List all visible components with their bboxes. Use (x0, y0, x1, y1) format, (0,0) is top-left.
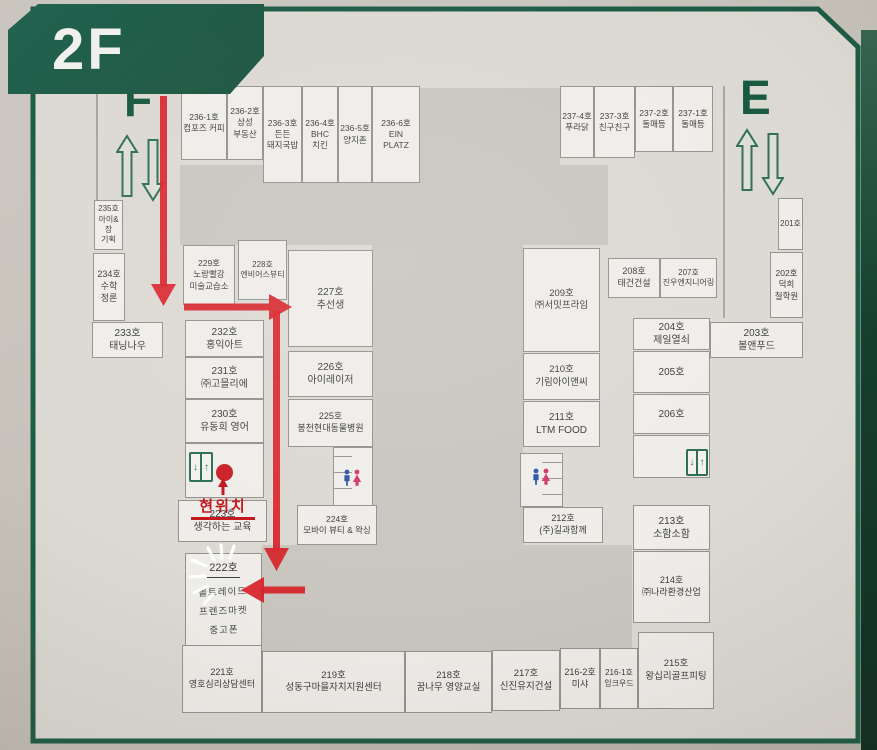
room-213: 213호소함소함 (633, 505, 710, 550)
room-name: 추선생 (317, 299, 345, 312)
room-number: 236-1호 (189, 112, 219, 123)
room-237-2: 237-2호돌매등 (635, 86, 673, 152)
room-name: 미샤 (572, 679, 589, 691)
room-name: 잉크우드 (604, 679, 633, 689)
room-name: 컴포즈 커피 (183, 123, 224, 134)
room-name: 진우엔지니어링 (663, 278, 715, 288)
room-number: 214호 (660, 575, 683, 587)
room-name: 제일열쇠 (653, 334, 690, 347)
room-236-5: 236-5호양지촌 (338, 86, 372, 183)
room-number: 236-3호 (268, 118, 298, 129)
restroom-icon (530, 468, 552, 485)
floor-badge: 2F (8, 4, 264, 94)
room-name: BHC 치킨 (311, 129, 329, 151)
room-name: 소함소함 (653, 528, 690, 541)
room-name: 영호심리상담센터 (189, 679, 255, 691)
frame-bottom-edge (0, 738, 877, 750)
room-212: 212호(주)길과함께 (523, 507, 603, 543)
room-number: 237-1호 (678, 108, 708, 119)
room-number: 225호 (319, 411, 342, 423)
room-number: 234호 (97, 269, 120, 281)
room-number: 233호 (115, 327, 141, 340)
room-209: 209호㈜서밋프라임 (523, 248, 600, 352)
room-233: 233호태닝나우 (92, 322, 163, 358)
stairwell-e-label: E (740, 69, 771, 126)
room-name: 올트레이드 프렌즈마켓 중고폰 (198, 582, 249, 641)
floor-map-sign: 236-1호컴포즈 커피 236-2호삼성 부동산 236-3호든든 돼지국밥 … (0, 0, 877, 750)
room-236-1: 236-1호컴포즈 커피 (181, 86, 227, 160)
room-number: 217호 (514, 668, 539, 680)
floor-label: 2F (52, 16, 126, 83)
room-number: 226호 (318, 361, 344, 374)
room-number: 230호 (212, 408, 238, 421)
room-number: 236-5호 (340, 123, 370, 134)
room-name: 아이레이저 (308, 374, 354, 387)
room-number: 208호 (622, 266, 645, 278)
room-name: 돌매등 (681, 119, 704, 130)
route-arrowhead-down (151, 284, 176, 306)
room-number: 211호 (549, 411, 574, 424)
room-218: 218호꿈나무 영양교실 (405, 651, 492, 713)
room-229: 229호노랑빨강 미술교습소 (183, 245, 235, 305)
room-number: 231호 (212, 365, 238, 378)
room-name: ㈜서밋프라임 (535, 300, 588, 312)
room-234: 234호수학 정론 (93, 253, 125, 321)
room-211: 211호LTM FOOD (523, 401, 600, 447)
room-236-2: 236-2호삼성 부동산 (227, 86, 263, 160)
elevator-up-arrow: ↑ (200, 454, 211, 480)
room-number: 210호 (549, 364, 574, 376)
room-number: 237-3호 (600, 111, 630, 122)
room-name: 태닝나우 (109, 340, 146, 353)
room-number: 216-1호 (605, 668, 633, 678)
room-224: 224호모바이 뷰티 & 왁싱 (297, 505, 377, 545)
room-name: 친구친구 (599, 122, 630, 133)
room-number: 205호 (659, 366, 685, 379)
room-name: 기림아이앤씨 (535, 377, 587, 389)
room-number: 203호 (744, 327, 770, 340)
room-name: 수학 정론 (101, 281, 118, 304)
room-name: 돌매등 (642, 119, 665, 130)
room-name: 덕희 철학원 (775, 279, 798, 301)
room-name: 봉천현대동물병원 (297, 423, 363, 435)
room-number: 235호 (98, 204, 119, 214)
room-number: 204호 (659, 321, 685, 334)
room-number: 201호 (780, 219, 801, 229)
room-name: 노랑빨강 미술교습소 (189, 269, 228, 291)
elevator-up-arrow: ↑ (696, 451, 706, 474)
room-name: 아이&장 기획 (95, 215, 122, 246)
room-name: 성동구마을자치지원센터 (285, 682, 381, 694)
room-name: 생각하는 교육 (194, 521, 252, 534)
room-number: 213호 (659, 515, 685, 528)
room-number: 228호 (252, 260, 273, 270)
room-number: 219호 (321, 670, 346, 682)
room-222: 222호올트레이드 프렌즈마켓 중고폰 (185, 553, 262, 648)
room-number: 236-6호 (381, 118, 411, 129)
courtyard-bottom (262, 545, 632, 655)
room-number: 229호 (198, 258, 220, 269)
room-name: 태건건설 (617, 278, 650, 290)
room-number: 236-4호 (305, 118, 335, 129)
room-name: 유동희 영어 (200, 421, 249, 434)
room-208: 208호태건건설 (608, 258, 660, 298)
room-name: 양지촌 (343, 135, 366, 146)
room-205: 205호 (633, 351, 710, 393)
room-name: 든든 돼지국밥 (267, 129, 298, 151)
room-202: 202호덕희 철학원 (770, 252, 803, 318)
room-206: 206호 (633, 394, 710, 434)
room-number: 237-2호 (639, 108, 669, 119)
room-number: 222호 (207, 561, 239, 577)
room-236-3: 236-3호든든 돼지국밥 (263, 86, 302, 183)
room-name: (주)길과함께 (539, 525, 586, 537)
room-214: 214호㈜나라환경산업 (633, 551, 710, 623)
elevator-down-arrow: ↓ (688, 451, 696, 474)
current-location-dot (216, 464, 233, 481)
room-name: 신진유지건설 (500, 681, 552, 693)
room-number: 215호 (664, 658, 689, 670)
room-name: LTM FOOD (536, 424, 587, 437)
room-name: 꿈나무 영양교실 (417, 682, 481, 694)
room-225: 225호봉천현대동물병원 (288, 399, 373, 447)
room-name: 푸라닭 (565, 122, 588, 133)
room-number: 221호 (210, 667, 233, 679)
wall-line-right (723, 86, 725, 318)
room-215: 215호왕십리골프피팅 (638, 632, 714, 709)
room-name: EIN PLATZ (383, 129, 409, 151)
room-231: 231호㈜고믈리에 (185, 357, 264, 399)
room-name: ㈜나라환경산업 (642, 587, 701, 599)
room-217: 217호신진유지건설 (492, 650, 560, 711)
room-number: 206호 (659, 408, 685, 421)
room-number: 236-2호 (230, 106, 260, 117)
room-number: 212호 (551, 513, 574, 525)
room-name: 홍익아트 (206, 339, 243, 352)
room-219: 219호성동구마을자치지원센터 (262, 651, 405, 713)
room-226: 226호아이레이저 (288, 351, 373, 397)
room-228: 228호엔비어스뷰티 (238, 240, 287, 300)
room-number: 218호 (436, 670, 461, 682)
room-230: 230호유동희 영어 (185, 399, 264, 443)
room-name: ㈜고믈리에 (201, 378, 248, 391)
elevator-down-arrow: ↓ (191, 454, 200, 480)
room-203: 203호볼앤푸드 (710, 322, 803, 358)
room-number: 216-2호 (564, 667, 595, 679)
room-216-1: 216-1호잉크우드 (600, 648, 638, 709)
room-number: 224호 (326, 514, 348, 525)
room-237-4: 237-4호푸라닭 (560, 86, 594, 158)
room-207: 207호진우엔지니어링 (660, 258, 717, 298)
room-216-2: 216-2호미샤 (560, 648, 600, 709)
room-name: 삼성 부동산 (233, 117, 256, 139)
room-237-1: 237-1호돌매등 (673, 86, 713, 152)
room-name: 모바이 뷰티 & 왁싱 (303, 525, 371, 536)
restroom-icon (341, 469, 363, 486)
room-number: 207호 (678, 268, 699, 278)
current-location-label: 현위치 (191, 495, 255, 520)
room-name: 엔비어스뷰티 (240, 270, 284, 280)
room-210: 210호기림아이앤씨 (523, 353, 600, 400)
room-201: 201호 (778, 198, 803, 250)
room-name: 볼앤푸드 (738, 340, 775, 353)
room-number: 232호 (212, 326, 238, 339)
room-204: 204호제일열쇠 (633, 318, 710, 350)
frame-right-edge (861, 30, 877, 750)
room-236-4: 236-4호BHC 치킨 (302, 86, 338, 183)
room-235: 235호아이&장 기획 (94, 200, 123, 250)
room-221: 221호영호심리상담센터 (182, 645, 262, 713)
room-232: 232호홍익아트 (185, 320, 264, 357)
room-236-6: 236-6호EIN PLATZ (372, 86, 420, 183)
elevator-icon: ↓ ↑ (189, 452, 213, 482)
elevator-icon: ↓ ↑ (686, 449, 708, 476)
room-number: 227호 (318, 286, 344, 299)
room-number: 202호 (775, 268, 797, 279)
room-237-3: 237-3호친구친구 (594, 86, 635, 158)
room-227: 227호추선생 (288, 250, 373, 347)
room-name: 왕십리골프피팅 (645, 671, 706, 683)
stairs-up-down-icon (736, 128, 784, 196)
room-number: 209호 (549, 288, 574, 300)
stairs-up-down-icon (116, 134, 164, 202)
room-number: 237-4호 (562, 111, 592, 122)
